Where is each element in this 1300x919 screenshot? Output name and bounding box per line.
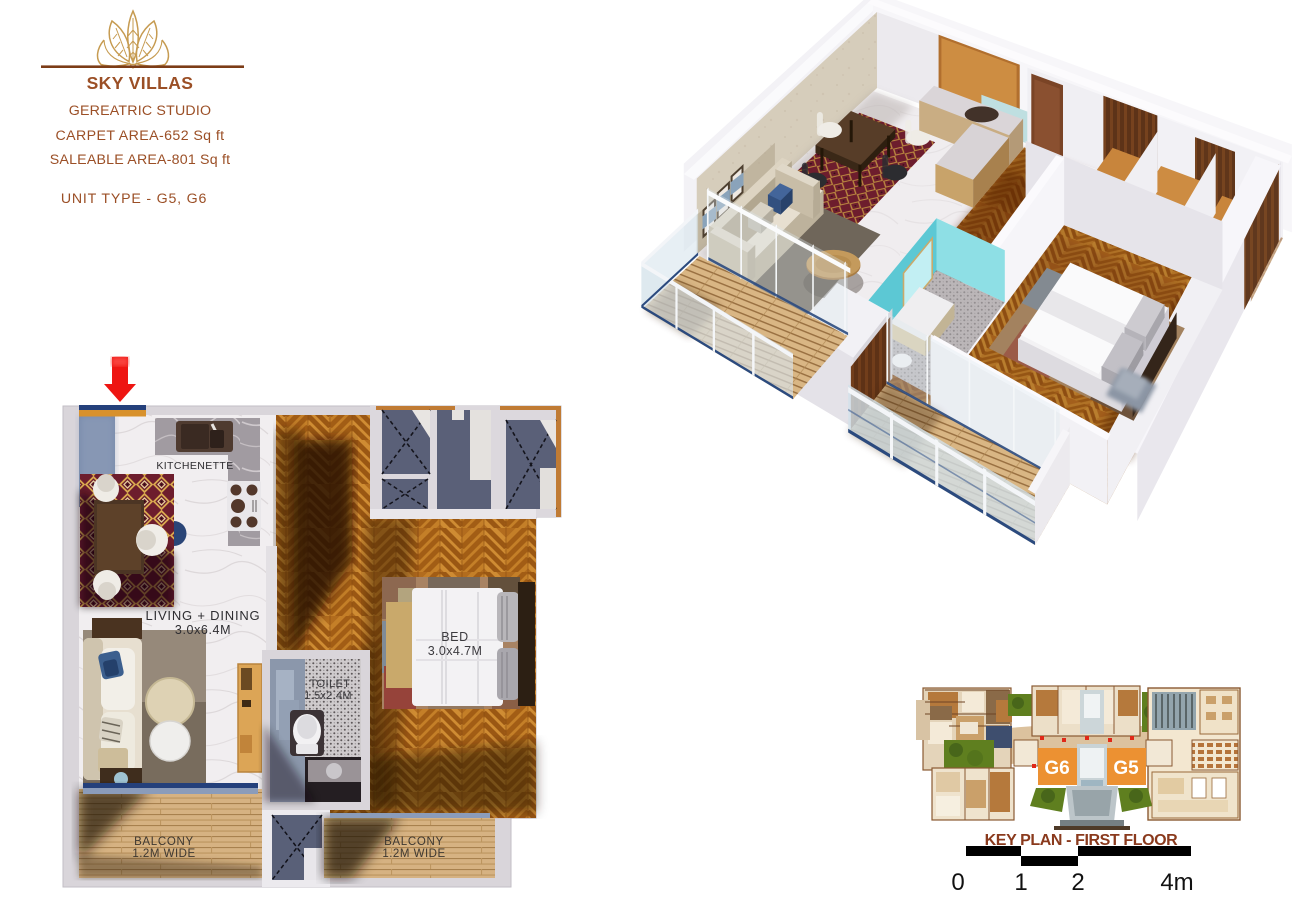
svg-text:1.5x2.4M: 1.5x2.4M (304, 690, 352, 702)
svg-text:1.2M WIDE: 1.2M WIDE (382, 848, 445, 860)
svg-text:1.2M WIDE: 1.2M WIDE (132, 848, 195, 860)
svg-text:BALCONY: BALCONY (134, 836, 194, 848)
svg-text:BED: BED (441, 630, 469, 644)
svg-text:BALCONY: BALCONY (384, 836, 444, 848)
svg-text:3.0x4.7M: 3.0x4.7M (428, 644, 483, 658)
svg-text:3.0x6.4M: 3.0x6.4M (175, 623, 231, 637)
svg-text:CARPET AREA-652 Sq ft: CARPET AREA-652 Sq ft (56, 128, 225, 144)
svg-text:GEREATRIC STUDIO: GEREATRIC STUDIO (69, 103, 211, 119)
svg-text:4m: 4m (1160, 869, 1193, 896)
svg-text:KITCHENETTE: KITCHENETTE (156, 460, 233, 472)
svg-text:2: 2 (1071, 869, 1084, 896)
svg-text:SALEABLE AREA-801 Sq ft: SALEABLE AREA-801 Sq ft (50, 152, 230, 168)
svg-text:SKY VILLAS: SKY VILLAS (87, 73, 194, 93)
svg-text:1: 1 (1014, 869, 1027, 896)
svg-text:TOILET: TOILET (310, 678, 351, 690)
svg-text:LIVING + DINING: LIVING + DINING (146, 608, 261, 623)
svg-text:UNIT TYPE - G5, G6: UNIT TYPE - G5, G6 (61, 191, 207, 207)
svg-text:G6: G6 (1044, 758, 1069, 779)
svg-text:G5: G5 (1113, 758, 1139, 779)
svg-text:0: 0 (951, 869, 964, 896)
